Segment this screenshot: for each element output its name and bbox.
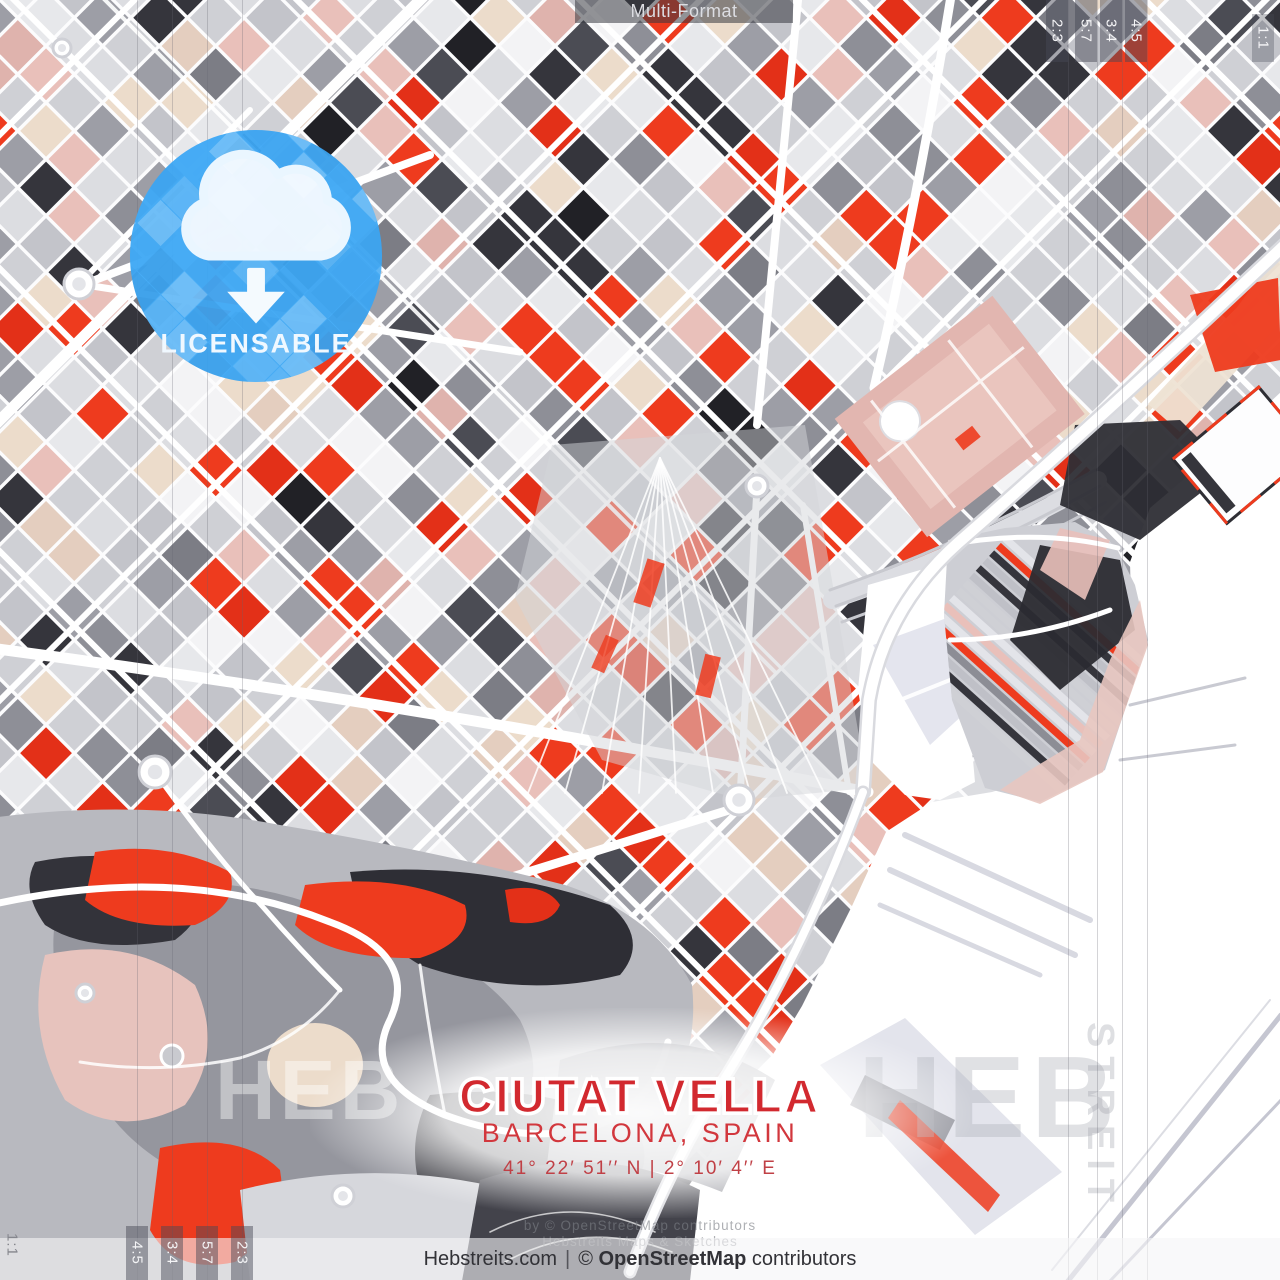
download-arrow-stem bbox=[247, 268, 265, 294]
aspect-ratio-2-3: 2:3 bbox=[231, 1226, 253, 1280]
aspect-ratio-5-7: 5:7 bbox=[1075, 0, 1097, 62]
licensable-badge: LICENSABLE bbox=[127, 127, 385, 385]
crop-guide-line bbox=[1097, 0, 1098, 1280]
poster-title-inline: CIUTAT VELLA bbox=[459, 1070, 820, 1122]
aspect-ratio-1-1: 1:1 bbox=[1, 1222, 23, 1268]
crop-guide-line bbox=[1068, 0, 1069, 1280]
faint-attribution-line1: by © OpenStreetMap contributors bbox=[0, 1218, 1280, 1233]
multi-format-label: Multi-Format bbox=[575, 0, 793, 23]
poster-subtitle: BARCELONA, SPAIN bbox=[0, 1118, 1280, 1149]
aspect-ratio-4-5: 4:5 bbox=[1125, 0, 1147, 62]
poster-coordinates: 41° 22′ 51′′ N | 2° 10′ 4′′ E bbox=[0, 1158, 1280, 1180]
badge-label: LICENSABLE bbox=[161, 328, 352, 358]
crop-guide-line bbox=[1147, 0, 1148, 1280]
aspect-ratio-2-3: 2:3 bbox=[1046, 0, 1068, 62]
aspect-ratio-3-4: 3:4 bbox=[161, 1226, 183, 1280]
site-name: Hebstreits.com bbox=[424, 1248, 557, 1270]
osm-label: OpenStreetMap bbox=[599, 1248, 747, 1270]
crop-guide-line bbox=[1122, 0, 1123, 1280]
aspect-ratio-3-4: 3:4 bbox=[1100, 0, 1122, 62]
footer-separator: | bbox=[565, 1248, 570, 1270]
attribution-bar: Hebstreits.com|© OpenStreetMap contribut… bbox=[0, 1238, 1280, 1280]
aspect-ratio-4-5: 4:5 bbox=[126, 1226, 148, 1280]
aspect-ratio-1-1: 1:1 bbox=[1252, 14, 1274, 62]
copyright-symbol: © bbox=[578, 1248, 593, 1270]
aspect-ratio-5-7: 5:7 bbox=[196, 1226, 218, 1280]
contributors-label: contributors bbox=[752, 1248, 857, 1270]
map-poster-preview: HEB HEB STREIT CIUTAT VELLA CIUTAT VELLA… bbox=[0, 0, 1280, 1280]
